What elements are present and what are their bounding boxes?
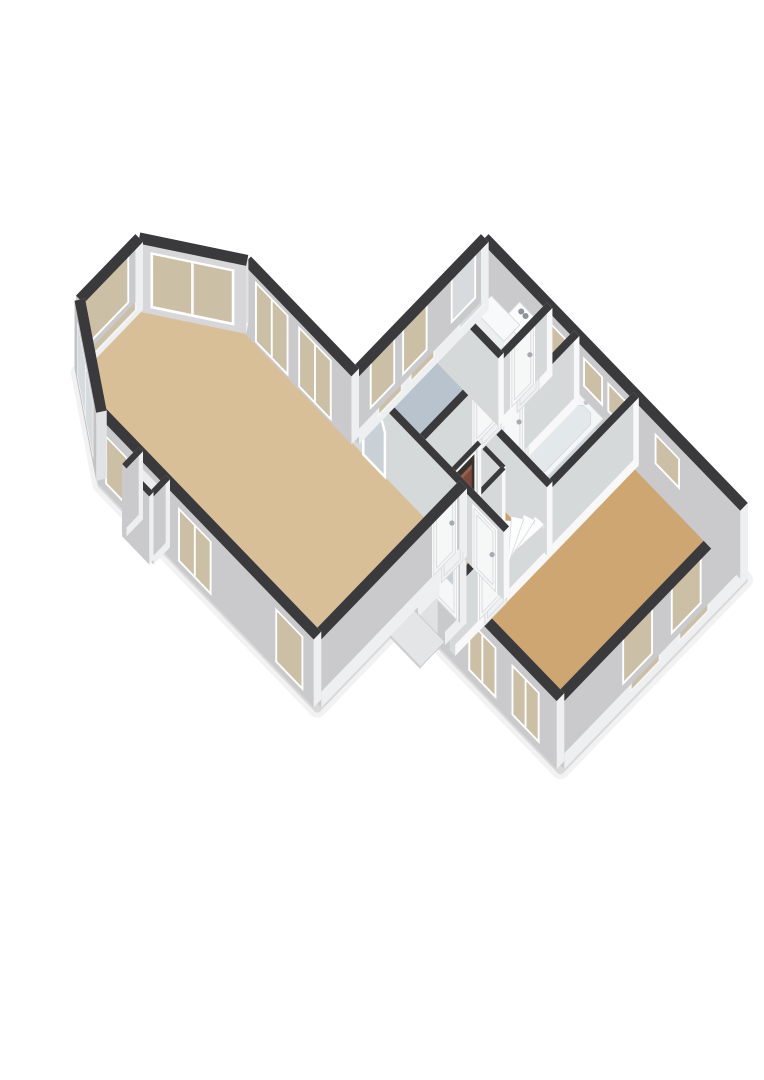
wall-niche-east-end [166,475,170,547]
floorplan-svg [0,0,764,1080]
window-mullion [481,635,483,683]
door-handle-icon [516,419,521,424]
wall-corridor-west-end [547,302,552,376]
door-handle-icon [489,552,494,557]
window-mullion [194,526,196,577]
window-mullion [271,300,273,358]
wall-bath-south-end [547,482,552,556]
window-mullion [191,263,194,315]
wall-bath-west-end [574,330,579,404]
door-handle-icon [527,352,532,357]
wall-niche-west-end [122,464,126,536]
wall-bedroom-west-north-end [633,392,638,466]
wall-south-east-end [557,693,565,769]
wall-niche-south-end [149,492,153,564]
wall-north-end [740,503,748,579]
washer-knob-icon [523,313,529,319]
washer-knob-icon [518,309,524,315]
wall-living-north-end [351,368,359,444]
floorplan-3d [0,0,764,1080]
wall-bay-sw-end [96,411,106,481]
wall-living-rear-end [504,526,509,600]
wall-study-utility-end [498,353,503,427]
wall-living-south-end [314,632,322,708]
window-mullion [85,364,86,418]
window-mullion [314,344,316,402]
window-mullion [525,680,527,728]
door-handle-icon [449,520,454,525]
wall-niche-west-end [139,447,143,519]
tub-faucet-icon [584,400,589,405]
